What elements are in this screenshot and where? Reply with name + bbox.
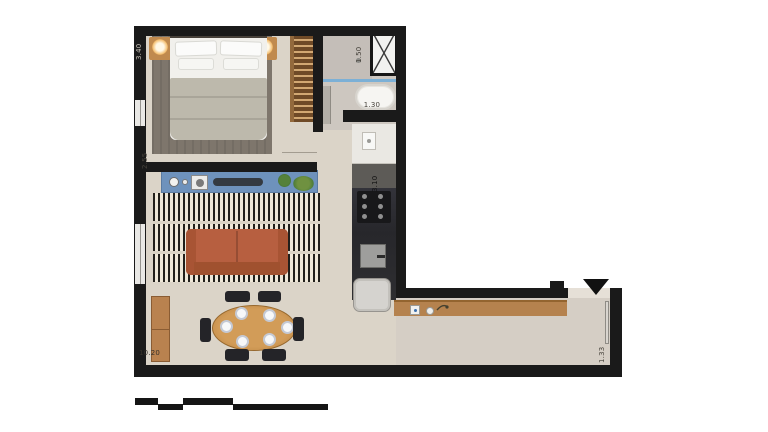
dimension-bathtub: 1.30 [352,101,392,109]
tray-icon [410,305,420,315]
wall-corridor-notch [550,281,564,290]
sprig-icon [436,303,450,312]
pillow [223,58,259,70]
entry-arrow-icon [583,279,609,295]
scale-bar-segment [233,404,328,410]
floor-plan: 3.40 2.55 1.50 1.30 3.10 10.20 1.33 [0,0,768,432]
scale-bar-segment [135,398,158,405]
shaft-x-icon [373,33,395,73]
media-console [161,170,318,193]
scale-bar-segment [183,398,233,405]
turntable [191,175,208,190]
wall-corridor-right [610,288,622,377]
blanket [170,78,267,140]
faucet-icon [377,255,385,258]
dimension-bedroom-width: 3.40 [135,34,143,60]
cup-icon [426,307,434,315]
sofa [186,229,288,275]
plate-icon [263,333,276,346]
dimension-kitchen: 3.10 [371,164,379,192]
entry-bench [394,300,567,316]
kitchen-counter-unit [362,132,376,150]
wall-corridor-top [396,288,568,298]
plate-icon [263,309,276,322]
dining-chair [225,291,250,302]
pillow [175,40,217,56]
window [135,100,145,126]
dining-chair [200,318,211,342]
plant-icon [278,174,291,187]
ventilation-shaft [370,30,398,76]
refrigerator [353,278,391,312]
dimension-apartment-length: 10.20 [139,349,175,357]
pillow [220,40,262,56]
wall-right [396,26,406,298]
speaker-icon [169,177,179,187]
window [135,224,145,284]
plate-icon [236,335,249,348]
sofa-back [194,262,280,275]
pillow [178,58,214,70]
cooktop [357,191,391,223]
dining-chair [293,317,304,341]
wall-bedroom-living [134,162,317,172]
wall-left [134,26,146,377]
shower-floor [318,36,372,81]
dimension-living-wall: 2.55 [141,141,149,169]
scale-bar-segment [158,404,183,410]
dining-chair [262,349,286,361]
shower-glass-partition [320,79,396,82]
dimension-shower: 1.50 [355,37,363,63]
kitchen-sink [360,244,386,268]
soundbar [213,178,263,186]
wall-bathroom-bottom [343,110,406,122]
wall-bedroom-bathroom [313,26,323,132]
plate-icon [235,307,248,320]
dining-chair [258,291,281,302]
lamp-icon [152,39,168,55]
dimension-entry: 1.33 [598,335,606,363]
plant-icon [293,176,314,191]
speaker-icon [182,179,188,185]
dining-chair [225,349,249,361]
bedroom-door-leaf [282,152,317,155]
plate-icon [220,320,233,333]
wall-bottom [134,365,622,377]
wall-top [134,26,406,36]
